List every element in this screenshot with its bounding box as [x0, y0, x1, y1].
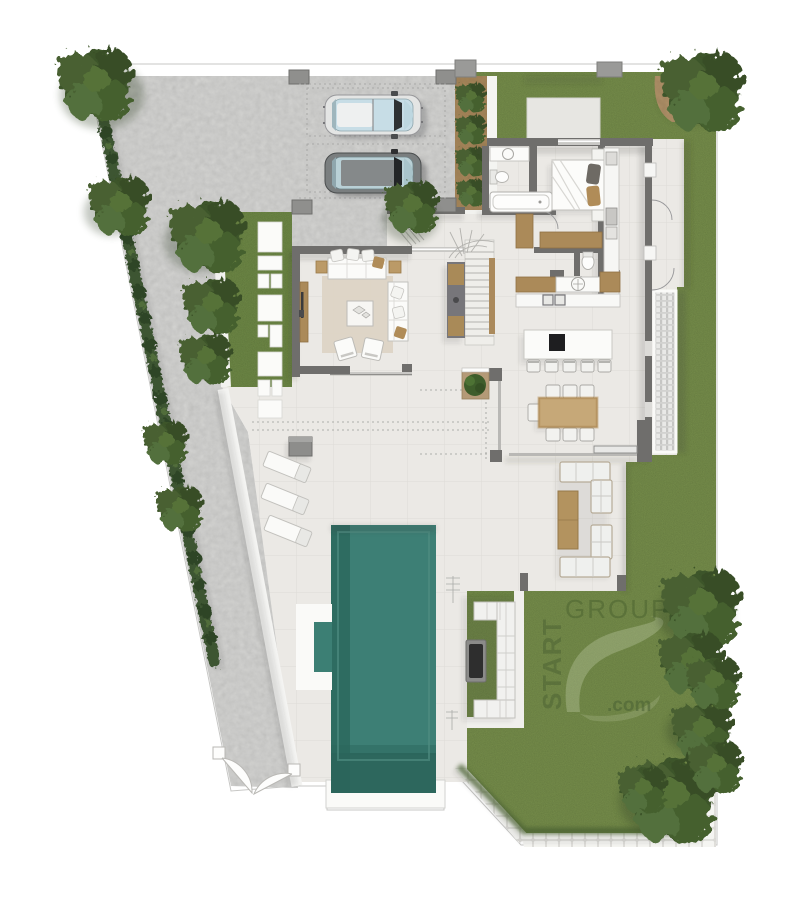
svg-text:START: START: [537, 618, 567, 710]
svg-text:GROUP: GROUP: [565, 594, 670, 624]
svg-text:.com: .com: [607, 695, 651, 716]
